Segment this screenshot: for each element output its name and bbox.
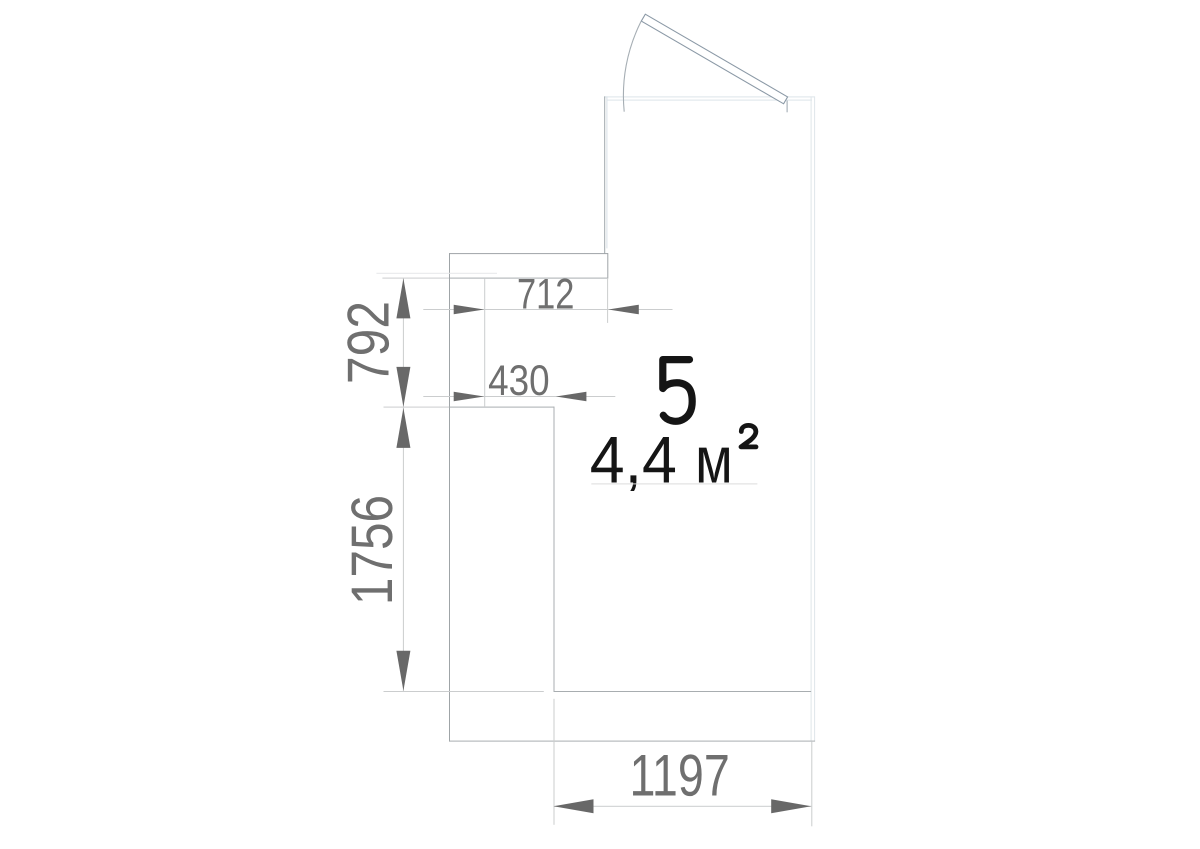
svg-text:м: м — [695, 424, 733, 498]
svg-text:430: 430 — [488, 357, 549, 405]
svg-text:792: 792 — [335, 301, 402, 384]
svg-text:712: 712 — [517, 271, 574, 319]
svg-text:1756: 1756 — [340, 495, 405, 605]
svg-text:4,4: 4,4 — [590, 424, 677, 498]
svg-text:1197: 1197 — [629, 744, 729, 809]
